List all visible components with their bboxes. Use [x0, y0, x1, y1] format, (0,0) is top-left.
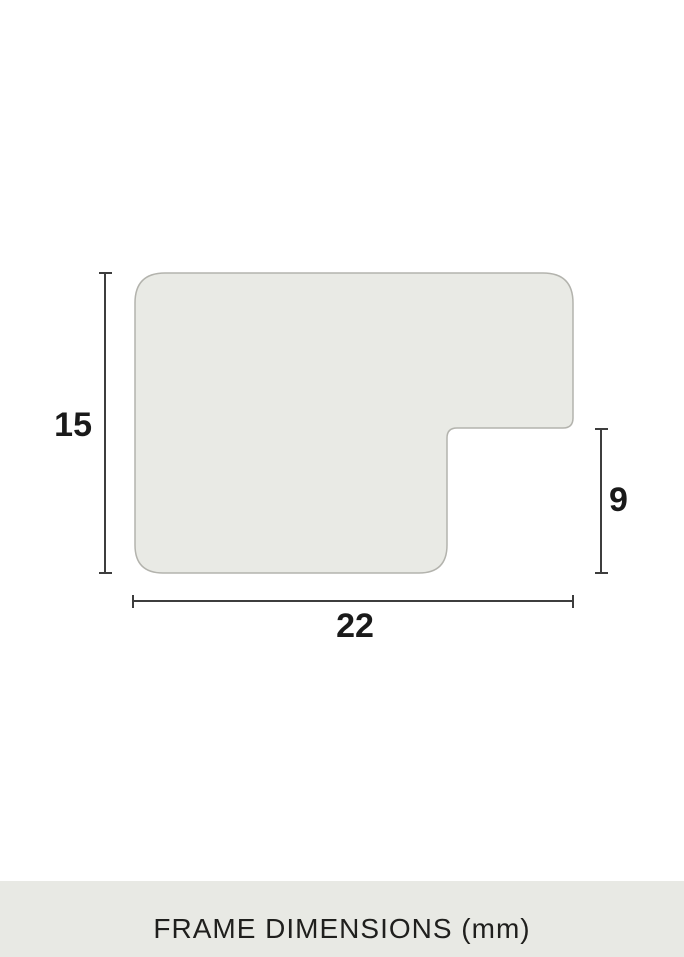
width-dimension-label: 22: [303, 609, 407, 643]
footer-caption-bar: FRAME DIMENSIONS (mm): [0, 881, 684, 957]
moulding-profile-shape: [135, 273, 573, 573]
profile-drawing: [0, 0, 684, 957]
depth-dimension-label: 9: [609, 483, 628, 517]
dimension-line-depth: [595, 429, 608, 573]
dimension-line-height: [99, 273, 112, 573]
footer-caption-text: FRAME DIMENSIONS (mm): [153, 913, 530, 945]
height-dimension-label: 15: [30, 408, 92, 442]
frame-dimensions-diagram: 15 9 22 FRAME DIMENSIONS (mm): [0, 0, 684, 957]
